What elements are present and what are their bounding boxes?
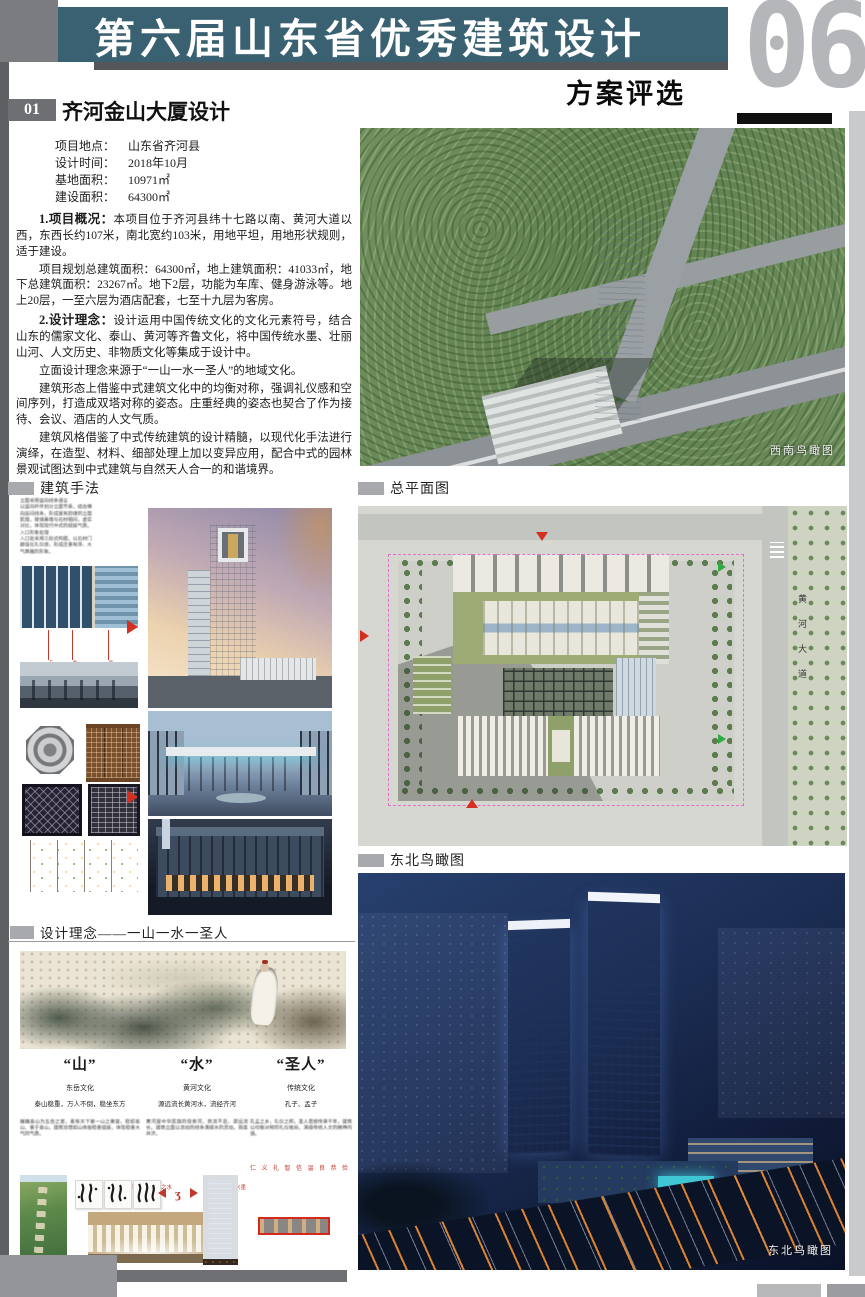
entry-marker-icon — [718, 734, 726, 744]
mountain-photo — [20, 1175, 67, 1265]
paragraph-lead: 1.项目概况： — [39, 212, 114, 226]
entry-marker-icon — [718, 562, 726, 572]
red-highlight-box — [258, 1217, 330, 1235]
tower-massing — [595, 219, 648, 420]
competition-title: 第六届山东省优秀建筑设计 — [58, 5, 646, 65]
tower-dusk-render — [148, 508, 332, 708]
caption-sw-aerial: 西南鸟瞰图 — [770, 442, 835, 458]
column-subtitle: 传统文化 — [250, 1083, 352, 1093]
column-title: “山” — [20, 1053, 140, 1074]
info-value: 山东省齐河县 — [128, 137, 200, 154]
header-banner: 第六届山东省优秀建筑设计 — [58, 7, 728, 62]
footer-bar — [117, 1270, 347, 1282]
ne-night-render: 东北鸟瞰图 — [358, 873, 845, 1270]
water-line-icon: ʒ — [175, 1187, 181, 1200]
column-title: “水” — [146, 1053, 248, 1074]
section-label-ne-view: 东北鸟瞰图 — [390, 850, 465, 870]
ground — [148, 676, 332, 708]
transform-arrows: ʒ — [158, 1184, 198, 1202]
footer-block — [0, 1255, 117, 1297]
background-city — [718, 928, 845, 1118]
ink-painting-image — [20, 951, 346, 1049]
virtues-row: 仁 义 礼 智 信 温 良 恭 俭 — [248, 1163, 352, 1172]
section-marker-icon — [358, 854, 384, 867]
page-number: 06 — [716, 0, 865, 105]
colonnade — [32, 680, 126, 700]
lit-base — [203, 1259, 238, 1265]
info-row-date: 设计时间：2018年10月 — [55, 154, 355, 171]
podium-highlight-image — [240, 1175, 347, 1265]
crown-glow — [228, 534, 238, 558]
footer-block-right-2 — [827, 1284, 865, 1297]
annex-block — [188, 570, 210, 676]
tower-east — [588, 900, 660, 1158]
info-row-location: 项目地点：山东省齐河县 — [55, 137, 355, 154]
ornate-panel-image — [30, 840, 138, 892]
column-line: 源远流长黄河水，流经齐河 — [146, 1098, 248, 1108]
west-wing — [148, 731, 184, 795]
concept-column-mountain: “山” 东岳文化 泰山稳重，万人不倒，稳坐东方 巍巍泰山为五岳之首，素有天下第一… — [20, 1053, 140, 1179]
section-marker-icon — [10, 926, 34, 939]
red-arrow-icon — [127, 620, 138, 634]
info-value: 64300㎡ — [128, 188, 170, 205]
methods-notes: 立面采用竖向线条语言 以竖向杆件划分立面节奏，结合横 向层间线条，形成富有韵律的… — [20, 499, 140, 556]
curtainwall-stripes — [20, 566, 92, 628]
project-overview: 1.项目概况：本项目位于齐河县纬十七路以南、黄河大道以西，东西长约107米，南北… — [16, 211, 352, 481]
foliage — [276, 508, 332, 598]
tower-west — [508, 927, 570, 1154]
sage-head — [260, 963, 269, 972]
calligraphy-tile — [104, 1180, 132, 1209]
dark-lattice-image — [22, 784, 82, 836]
competition-poster-page: 第六届山东省优秀建筑设计 方案评选 06 01 齐河金山大厦设计 项目地点：山东… — [0, 0, 865, 1297]
selection-subtitle: 方案评选 — [566, 72, 686, 111]
column-line: 泰山稳重，万人不倒，稳坐东方 — [20, 1098, 140, 1108]
podium-roof — [156, 827, 324, 836]
concept-column-sage: “圣人” 传统文化 孔子、孟子 孔孟之乡，礼仪之邦。圣人思想传承千年，建筑以均衡… — [250, 1053, 352, 1179]
water-glyph-icon — [76, 1181, 100, 1206]
overview-paragraph: 建筑形态上借鉴中式建筑文化中的均衡对称，强调礼仪感和空间序列，打造成双塔对称的姿… — [16, 382, 352, 430]
caption-ne-aerial: 东北鸟瞰图 — [768, 1242, 833, 1258]
lit-windows — [166, 875, 314, 891]
site-plan: 黄河大道 — [358, 506, 847, 846]
fountain — [216, 793, 266, 803]
section-marker-icon — [358, 482, 384, 495]
info-label: 基地面积： — [55, 173, 115, 187]
overview-paragraph: 立面设计理念来源于“一山一水一圣人”的地域文化。 — [16, 364, 352, 380]
road-name-label: 黄河大道 — [796, 594, 809, 694]
column-subtitle: 黄河文化 — [146, 1083, 248, 1093]
section-label-methods: 建筑手法 — [40, 478, 100, 498]
info-value: 2018年10月 — [128, 154, 188, 171]
overview-paragraph: 1.项目概况：本项目位于齐河县纬十七路以南、黄河大道以西，东西长约107米，南北… — [16, 211, 352, 261]
entrance-photo — [20, 662, 138, 708]
entry-marker-icon — [536, 532, 548, 541]
column-title: “圣人” — [250, 1053, 352, 1074]
info-label: 设计时间： — [55, 156, 115, 170]
column-paragraph: 巍巍泰山为五岳之首，素有天下第一山之美誉。稳如泰山、重于泰山，建筑双塔如山体般稳… — [20, 1120, 140, 1139]
page-number-bar — [737, 113, 832, 124]
project-number-badge: 01 — [8, 99, 56, 121]
info-value: 10971㎡ — [128, 171, 170, 188]
calligraphy-tile — [75, 1180, 103, 1209]
lit-sliver — [162, 819, 170, 849]
section-underline — [8, 941, 355, 942]
mountain-path — [33, 1181, 48, 1265]
site-boundary — [388, 554, 744, 806]
facade-annotations: 石材竖线 金属线条 玻璃幕墙 — [20, 630, 138, 660]
east-wing — [300, 731, 332, 795]
tower-elevation-image — [203, 1175, 238, 1265]
section-label-concept: 设计理念——一山一水一圣人 — [40, 922, 229, 942]
section-marker-icon — [8, 482, 34, 495]
facade-pattern-image — [20, 566, 138, 628]
right-edge-strip — [849, 111, 865, 1276]
entry-marker-icon — [466, 799, 478, 808]
canopy-slab — [166, 747, 316, 756]
paragraph-lead: 2.设计理念： — [39, 313, 114, 327]
project-title: 齐河金山大厦设计 — [62, 96, 230, 126]
wood-lattice-image — [86, 724, 140, 782]
column-line: 孔子、孟子 — [250, 1098, 352, 1108]
column-subtitle: 东岳文化 — [20, 1083, 140, 1093]
overview-paragraph: 2.设计理念：设计运用中国传统文化的文化元素符号，结合山东的儒家文化、泰山、黄河… — [16, 312, 352, 362]
louver-stripes — [92, 566, 138, 628]
footer-block-right — [757, 1284, 821, 1297]
tower-facade — [209, 1179, 232, 1259]
arrow-left-icon — [158, 1188, 166, 1198]
red-arrow-icon — [127, 790, 138, 804]
corner-block — [0, 0, 58, 62]
overview-paragraph: 建筑风格借鉴了中式传统建筑的设计精髓，以现代化手法进行演绎，在造型、材料、细部处… — [16, 431, 352, 479]
info-label: 建设面积： — [55, 190, 115, 204]
water-glyph-icon — [105, 1181, 129, 1206]
arrow-right-icon — [190, 1188, 198, 1198]
leader-line — [108, 630, 109, 660]
column-paragraph: 黄河是中华民族的母亲河，奔流不息、源远流长。建筑立面以流动的线条演绎水的灵动，刚… — [146, 1120, 248, 1139]
info-label: 项目地点： — [55, 139, 115, 153]
column-paragraph: 孔孟之乡，礼仪之邦。圣人思想传承千年，建筑以均衡对称的礼仪格局，演绎传统人文的精… — [250, 1120, 352, 1139]
podium — [240, 658, 316, 680]
left-edge-strip — [0, 0, 9, 1260]
info-row-build-area: 建设面积：64300㎡ — [55, 188, 355, 205]
leader-line — [72, 630, 73, 660]
podium-night-render — [148, 819, 332, 915]
info-row-site-area: 基地面积：10971㎡ — [55, 171, 355, 188]
banner-shadow-bar — [94, 62, 728, 70]
crosswalk — [770, 542, 784, 558]
sw-aerial-render: 西南鸟瞰图 — [360, 128, 845, 466]
concept-column-water: “水” 黄河文化 源远流长黄河水，流经齐河 黄河是中华民族的母亲河，奔流不息、源… — [146, 1053, 248, 1179]
sage-hat — [262, 960, 268, 964]
background-city — [358, 913, 508, 1173]
leader-line — [48, 630, 49, 660]
water-glyph-icon — [134, 1181, 158, 1206]
sage-figure — [249, 966, 280, 1026]
entry-marker-icon — [360, 630, 369, 642]
lobby-glass — [188, 757, 296, 791]
section-label-siteplan: 总平面图 — [390, 478, 450, 498]
calligraphy-tile — [133, 1180, 161, 1209]
octagon-carving-image — [26, 726, 74, 774]
hotel-entrance-render — [148, 711, 332, 816]
overview-paragraph: 项目规划总建筑面积：64300㎡，地上建筑面积：41033㎡，地下总建筑面积：2… — [16, 263, 352, 311]
